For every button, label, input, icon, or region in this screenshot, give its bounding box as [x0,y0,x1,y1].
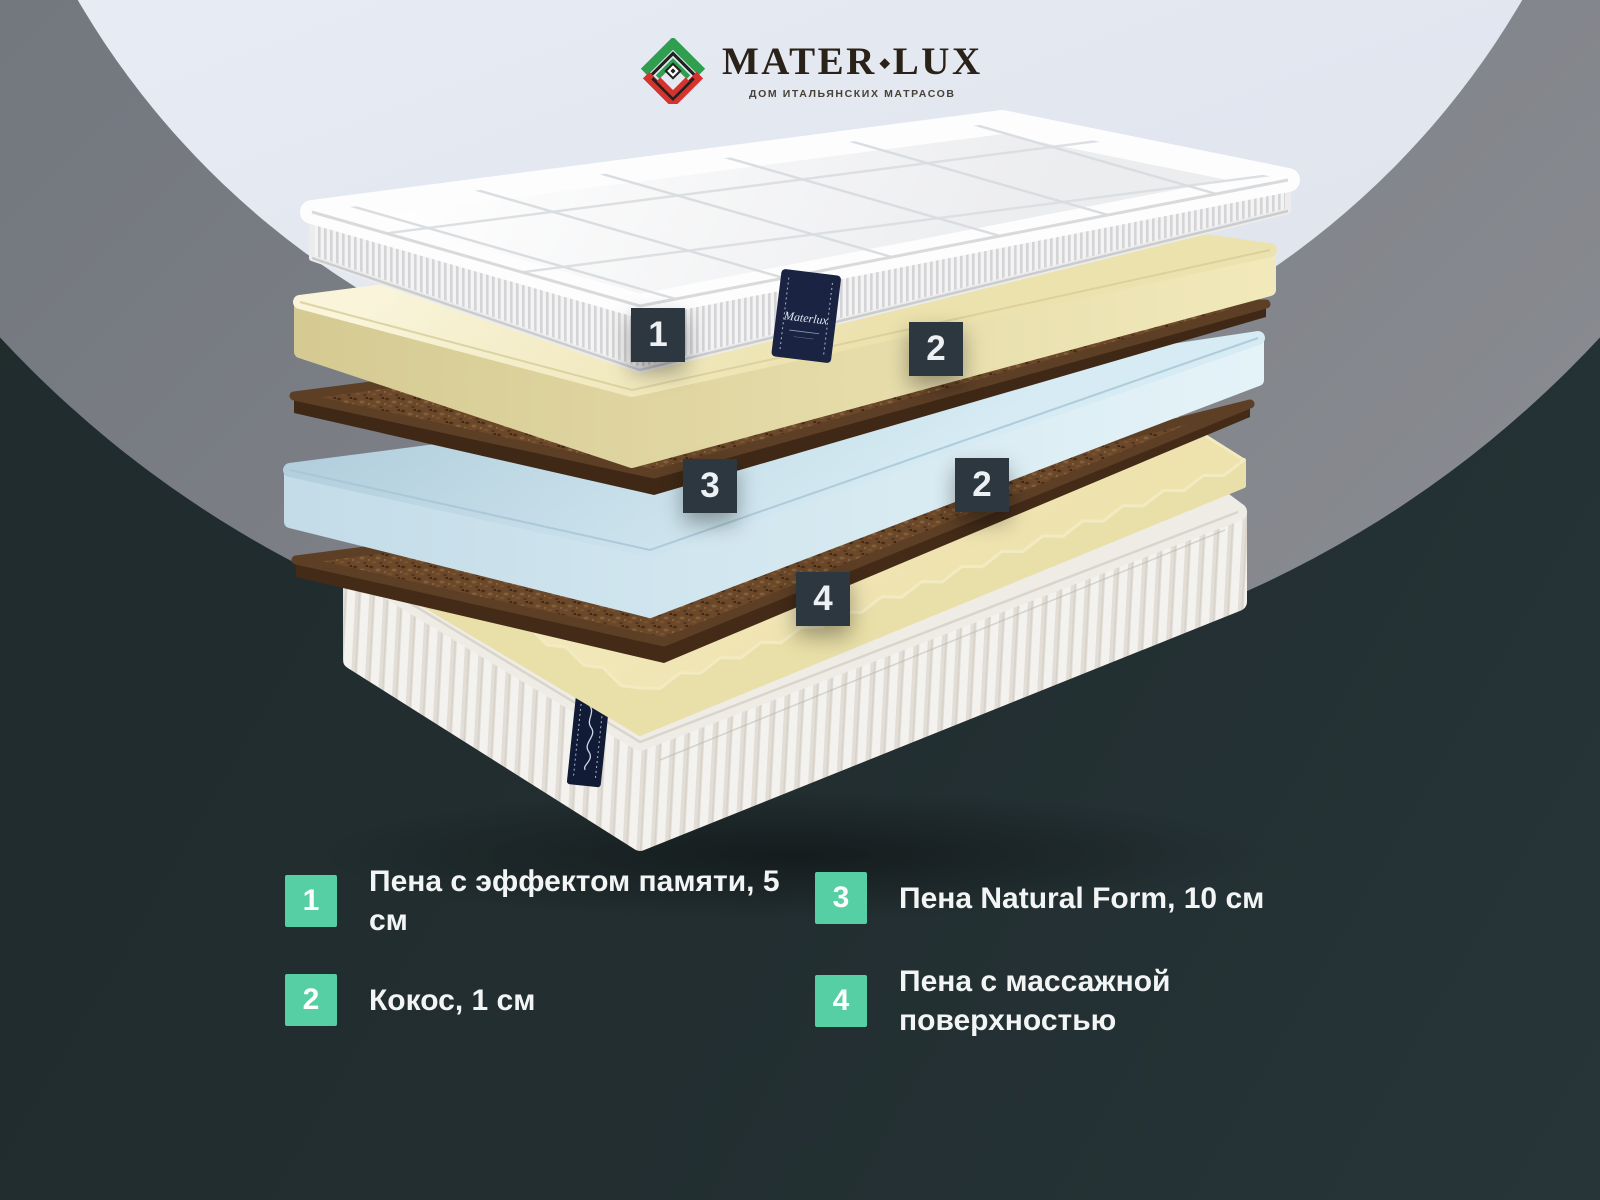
callout-3-natural-form: 3 [683,459,737,513]
callout-1-memory-foam: 1 [631,308,685,362]
legend-label: Пена Natural Form, 10 см [899,879,1264,918]
callout-4-massage-foam: 4 [796,572,850,626]
legend-number-badge: 3 [815,872,867,924]
legend-label: Пена с эффектом памяти, 5 см [369,862,789,940]
legend-item-massage-foam: 4 Пена с массажной поверхностью [815,962,1319,1040]
legend-item-coconut: 2 Кокос, 1 см [285,974,535,1026]
legend-label: Кокос, 1 см [369,981,535,1020]
callout-2-coconut-lower: 2 [955,458,1009,512]
infographic-canvas: MATER◆LUX ДОМ ИТАЛЬЯНСКИХ МАТРАСОВ [0,0,1600,1200]
legend-label: Пена с массажной поверхностью [899,962,1319,1040]
callout-2-coconut-upper: 2 [909,322,963,376]
legend-number-badge: 1 [285,875,337,927]
legend-number-badge: 2 [285,974,337,1026]
legend-number-badge: 4 [815,975,867,1027]
legend-item-natural-form: 3 Пена Natural Form, 10 см [815,872,1264,924]
legend-item-memory-foam: 1 Пена с эффектом памяти, 5 см [285,862,789,940]
cover-label-tag: Materlux [771,269,841,364]
